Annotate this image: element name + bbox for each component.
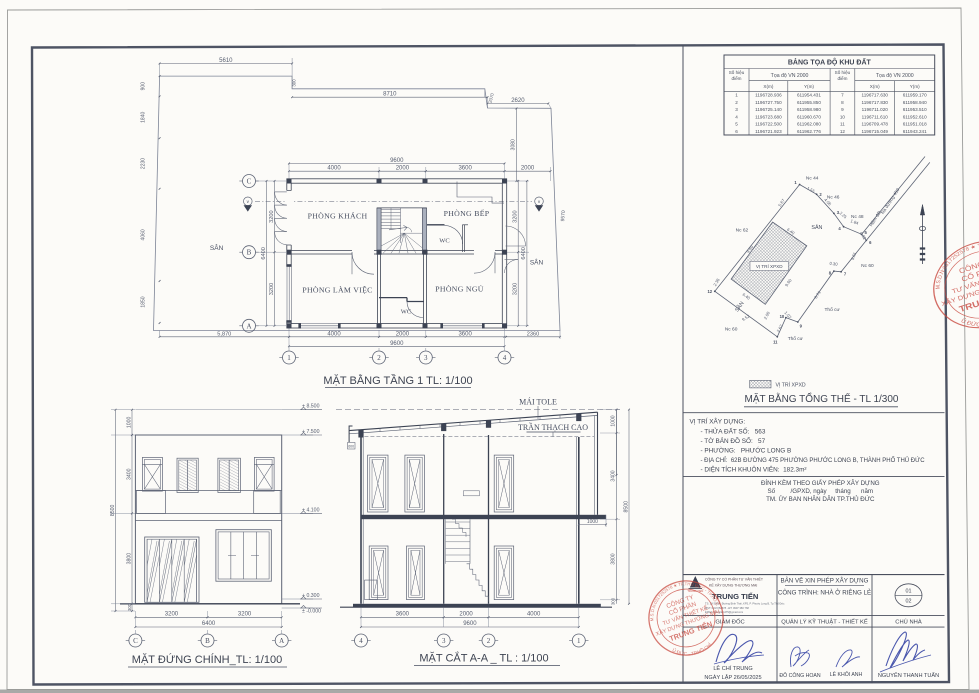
svg-text:A: A	[279, 637, 284, 645]
svg-text:611953.510: 611953.510	[903, 107, 927, 112]
svg-text:611958.980: 611958.980	[797, 107, 821, 112]
svg-text:LÊ CHÍ TRUNG: LÊ CHÍ TRUNG	[713, 664, 752, 672]
svg-text:3400: 3400	[126, 468, 132, 480]
svg-text:Số hiệu: Số hiệu	[729, 70, 745, 75]
svg-text:4000: 4000	[527, 612, 541, 618]
svg-text:điểm: điểm	[837, 75, 847, 81]
svg-text:611954.431: 611954.431	[797, 93, 821, 98]
svg-text:CHỦ NHÀ: CHỦ NHÀ	[895, 618, 922, 625]
svg-text:điểm: điểm	[732, 75, 742, 81]
svg-text:4: 4	[735, 114, 738, 119]
svg-text:1850: 1850	[141, 296, 147, 307]
svg-text:9600: 9600	[390, 158, 404, 164]
svg-text:1: 1	[287, 354, 291, 362]
svg-text:3400: 3400	[611, 470, 617, 481]
svg-text:2620: 2620	[511, 98, 525, 104]
svg-text:MST: 0317252578 - ĐT: 0907 380: MST: 0317252578 - ĐT: 0907 380 768	[705, 606, 749, 610]
svg-text:PHÒNG KHÁCH: PHÒNG KHÁCH	[308, 211, 368, 221]
svg-text:3600: 3600	[458, 166, 472, 172]
svg-text:WC: WC	[401, 309, 411, 316]
svg-text:+ 7.500: + 7.500	[302, 429, 320, 435]
svg-text:PHÒNG LÀM VIỆC: PHÒNG LÀM VIỆC	[302, 285, 372, 295]
svg-text:11: 11	[840, 122, 845, 127]
svg-text:6400: 6400	[521, 247, 527, 259]
svg-text:611952.610: 611952.610	[903, 114, 927, 119]
svg-text:+ 8.500: + 8.500	[302, 404, 320, 410]
svg-text:9600: 9600	[390, 341, 404, 347]
svg-text:TM. ỦY BAN NHÂN DÂN TP.THỦ ĐỨC: TM. ỦY BAN NHÂN DÂN TP.THỦ ĐỨC	[766, 496, 875, 503]
svg-text:MẶT CẮT A-A _ TL : 1/100: MẶT CẮT A-A _ TL : 1/100	[419, 652, 548, 665]
svg-text:01: 01	[906, 589, 912, 595]
svg-text:2000: 2000	[459, 612, 473, 618]
svg-text:WC: WC	[439, 238, 449, 245]
svg-text:9: 9	[841, 107, 844, 112]
svg-text:8710: 8710	[383, 92, 397, 98]
svg-text:MẶT ĐỨNG CHÍNH_TL: 1/100: MẶT ĐỨNG CHÍNH_TL: 1/100	[132, 653, 282, 666]
svg-text:3: 3	[424, 354, 428, 362]
svg-text:3200: 3200	[512, 210, 518, 222]
svg-text:BẢN VẼ XIN PHÉP XÂY DỰNG: BẢN VẼ XIN PHÉP XÂY DỰNG	[781, 578, 869, 585]
svg-text:12: 12	[840, 129, 846, 134]
svg-text:ĐỖ CÔNG HOAN: ĐỖ CÔNG HOAN	[779, 672, 820, 679]
svg-text:C: C	[247, 177, 252, 185]
svg-text:4000: 4000	[327, 331, 341, 337]
svg-text:1000: 1000	[126, 416, 132, 428]
svg-text:02: 02	[906, 598, 912, 604]
svg-text:3200: 3200	[269, 283, 275, 295]
svg-text:Y(m): Y(m)	[804, 84, 814, 89]
svg-text:NGUYỄN THANH TUẤN: NGUYỄN THANH TUẤN	[878, 672, 939, 679]
svg-text:3600: 3600	[458, 331, 472, 337]
svg-text:+ 4.100: + 4.100	[302, 507, 320, 513]
svg-text:3080: 3080	[511, 139, 517, 150]
svg-text:6: 6	[735, 129, 738, 134]
svg-text:3200: 3200	[165, 612, 179, 618]
svg-text:3: 3	[735, 107, 738, 112]
svg-text:CÔNG TRÌNH: NHÀ Ở RIÊNG LẺ: CÔNG TRÌNH: NHÀ Ở RIÊNG LẺ	[778, 589, 871, 597]
svg-text:- DIỆN TÍCH KHUÔN VIÊN: 182.3: - DIỆN TÍCH KHUÔN VIÊN: 182.3m²	[701, 465, 807, 474]
svg-text:1196721.923: 1196721.923	[755, 129, 782, 134]
svg-text:3: 3	[442, 637, 446, 645]
svg-text:A: A	[246, 322, 251, 330]
svg-text:6400: 6400	[202, 621, 216, 627]
svg-text:9570: 9570	[560, 210, 567, 222]
svg-text:12: 12	[707, 289, 712, 294]
svg-text:8500: 8500	[623, 501, 629, 513]
svg-text:Số hiệu: Số hiệu	[835, 70, 851, 75]
svg-text:9600: 9600	[463, 621, 477, 627]
svg-text:1196722.500: 1196722.500	[755, 122, 782, 127]
svg-text:3600: 3600	[396, 612, 410, 618]
svg-text:1: 1	[577, 637, 581, 645]
svg-text:B: B	[205, 637, 210, 645]
svg-text:CÔNG TY CỔ PHẦN TƯ VẤN THIẾT: CÔNG TY CỔ PHẦN TƯ VẤN THIẾT	[705, 576, 764, 581]
svg-text:3200: 3200	[512, 283, 518, 295]
svg-text:3200: 3200	[238, 612, 252, 618]
svg-text:1000: 1000	[611, 415, 617, 426]
svg-text:2230: 2230	[141, 158, 147, 169]
svg-text:± -0.000: ± -0.000	[302, 609, 321, 615]
svg-text:ĐÍNH KÈM THEO GIẤY PHÉP XÂY DỰ: ĐÍNH KÈM THEO GIẤY PHÉP XÂY DỰNG	[761, 480, 880, 487]
svg-text:QUẢN LÝ KỸ THUẬT - THIẾT KẾ: QUẢN LÝ KỸ THUẬT - THIẾT KẾ	[781, 618, 868, 625]
svg-text:C: C	[133, 637, 138, 645]
svg-text:4060: 4060	[141, 229, 147, 240]
svg-text:NGÀY LẬP 26/05/2025: NGÀY LẬP 26/05/2025	[704, 674, 761, 681]
svg-text:8: 8	[841, 100, 844, 105]
svg-text:1196709.478: 1196709.478	[862, 122, 889, 127]
svg-text:2360: 2360	[527, 331, 539, 337]
svg-text:3800: 3800	[126, 553, 132, 565]
svg-text:SÂN: SÂN	[811, 224, 822, 231]
svg-text:KẾ XÂY DỰNG THƯƠNG MẠI: KẾ XÂY DỰNG THƯƠNG MẠI	[709, 582, 757, 587]
svg-text:GIÁM ĐỐC: GIÁM ĐỐC	[715, 618, 744, 625]
svg-text:1840: 1840	[141, 112, 147, 123]
svg-text:6400: 6400	[261, 247, 267, 259]
svg-text:SÂN: SÂN	[530, 258, 544, 267]
svg-text:Tọa độ VN 2000: Tọa độ VN 2000	[771, 73, 809, 79]
svg-text:4: 4	[503, 354, 507, 362]
svg-text:5: 5	[735, 122, 738, 127]
svg-text:- ĐỊA CHỈ: 62B ĐƯỜNG 475 PHƯỜ: - ĐỊA CHỈ: 62B ĐƯỜNG 475 PHƯỜNG PHƯỚC LO…	[701, 457, 926, 464]
svg-text:VỊ TRÍ XPXD: VỊ TRÍ XPXD	[776, 382, 806, 389]
svg-text:611958.940: 611958.940	[903, 100, 927, 105]
svg-text:B: B	[247, 249, 252, 257]
svg-text:4000: 4000	[327, 166, 341, 172]
svg-text:X(m): X(m)	[763, 84, 773, 89]
svg-text:MẶT BẰNG TỔNG THỂ - TL 1/300: MẶT BẰNG TỔNG THỂ - TL 1/300	[745, 392, 899, 405]
svg-text:Thổ cư: Thổ cư	[824, 306, 840, 313]
svg-text:611959.170: 611959.170	[903, 93, 927, 98]
svg-text:3200: 3200	[269, 210, 275, 222]
svg-text:SÂN: SÂN	[210, 243, 224, 252]
svg-text:Nc 60: Nc 60	[725, 327, 738, 333]
svg-text:PHÒNG NGỦ: PHÒNG NGỦ	[435, 284, 483, 294]
svg-text:611962.776: 611962.776	[797, 129, 821, 134]
svg-text:3800: 3800	[611, 553, 617, 564]
svg-text:1196727.750: 1196727.750	[755, 100, 782, 105]
svg-text:1000: 1000	[587, 519, 598, 525]
svg-text:10: 10	[780, 314, 785, 319]
svg-text:1: 1	[735, 93, 738, 98]
svg-text:1196717.830: 1196717.830	[862, 100, 889, 105]
svg-text:2000: 2000	[396, 166, 410, 172]
svg-text:300: 300	[127, 603, 132, 611]
svg-text:1196717.630: 1196717.630	[862, 93, 889, 98]
svg-text:+ 0.300: + 0.300	[302, 593, 320, 599]
svg-text:- PHƯỜNG: PHƯỚC LONG B: - PHƯỜNG: PHƯỚC LONG B	[701, 446, 792, 455]
svg-text:611962.080: 611962.080	[797, 122, 821, 127]
svg-text:611951.018: 611951.018	[903, 122, 927, 127]
svg-text:1196725.140: 1196725.140	[755, 107, 782, 112]
svg-text:2000: 2000	[396, 331, 410, 337]
svg-text:1196715.049: 1196715.049	[862, 129, 889, 134]
svg-text:Số /GPXD, ngày thá: Số /GPXD, ngày tháng năm	[768, 488, 874, 495]
svg-text:LÊ KHÔI ANH: LÊ KHÔI ANH	[830, 670, 863, 678]
svg-text:10: 10	[840, 114, 846, 119]
svg-text:611943.241: 611943.241	[903, 129, 927, 134]
svg-text:5,870: 5,870	[217, 331, 231, 337]
svg-text:300: 300	[292, 79, 297, 87]
svg-text:2000: 2000	[521, 166, 535, 172]
svg-text:8500: 8500	[110, 504, 116, 516]
svg-text:MÁI TOLE: MÁI TOLE	[519, 397, 557, 407]
svg-text:300: 300	[611, 597, 616, 605]
svg-text:1196728.936: 1196728.936	[755, 93, 782, 98]
svg-text:MẶT BẰNG TẦNG 1 TL: 1/100: MẶT BẰNG TẦNG 1 TL: 1/100	[323, 374, 472, 387]
svg-text:2: 2	[487, 637, 491, 645]
svg-text:1196723.680: 1196723.680	[755, 114, 782, 119]
svg-text:600: 600	[348, 445, 354, 449]
svg-text:Thổ cư: Thổ cư	[788, 335, 804, 342]
svg-text:Nc 62: Nc 62	[736, 228, 749, 234]
svg-text:TRUNG TIẾN: TRUNG TIẾN	[712, 591, 758, 601]
svg-text:900: 900	[141, 82, 147, 91]
svg-text:1196711.610: 1196711.610	[862, 114, 889, 119]
svg-text:Tọa độ VN 2000: Tọa độ VN 2000	[876, 73, 914, 79]
svg-text:11: 11	[773, 339, 778, 344]
svg-text:X(m): X(m)	[870, 84, 880, 89]
svg-text:Nc 60: Nc 60	[861, 263, 874, 269]
svg-text:VỊ TRÍ XPXD: VỊ TRÍ XPXD	[756, 263, 783, 269]
svg-text:1196711.020: 1196711.020	[862, 107, 889, 112]
svg-text:Y(m): Y(m)	[910, 84, 920, 89]
svg-text:PHÒNG BẾP: PHÒNG BẾP	[444, 208, 490, 218]
svg-text:5610: 5610	[219, 58, 233, 64]
svg-text:611955.850: 611955.850	[797, 100, 821, 105]
svg-text:2: 2	[377, 354, 381, 362]
svg-text:4: 4	[359, 637, 363, 645]
svg-text:611960.670: 611960.670	[797, 114, 821, 119]
svg-text:2: 2	[735, 100, 738, 105]
svg-text:TRẦN THẠCH CAO: TRẦN THẠCH CAO	[518, 422, 588, 432]
svg-text:7: 7	[841, 93, 844, 98]
svg-text:Nc 44: Nc 44	[806, 176, 819, 182]
svg-text:VỊ TRÍ XÂY DỰNG:: VỊ TRÍ XÂY DỰNG:	[690, 417, 746, 426]
